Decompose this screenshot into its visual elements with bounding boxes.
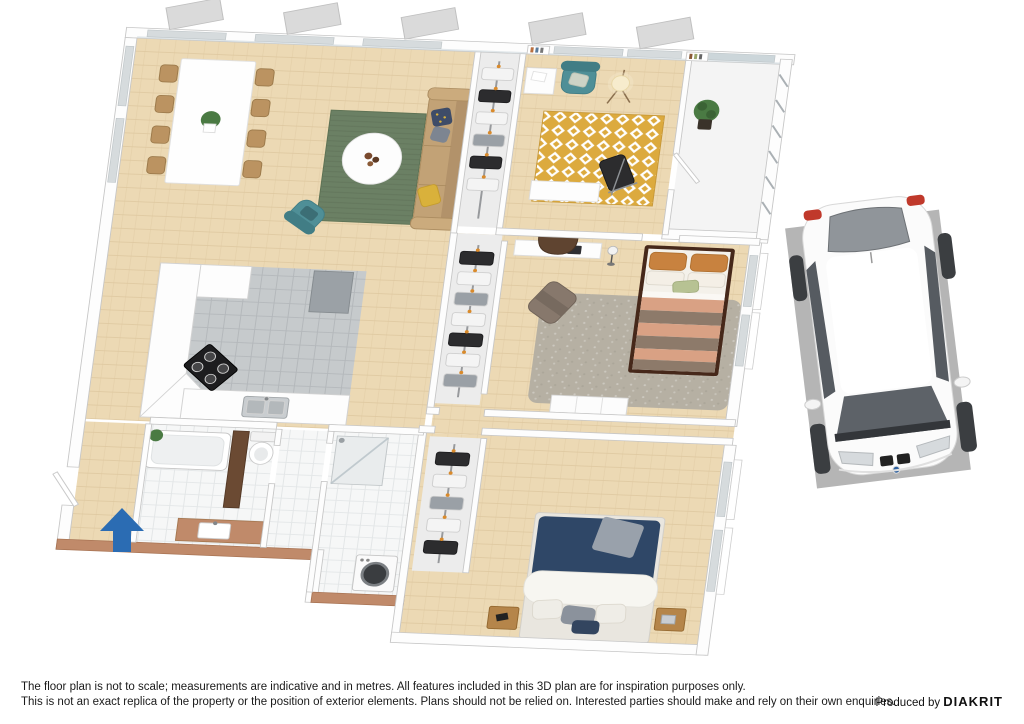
producer-credit: Produced by DIAKRIT	[876, 694, 1003, 709]
wall-master-bottom-a	[426, 407, 440, 414]
credit-prefix: Produced by	[876, 697, 944, 709]
floor-plan-page: The floor plan is not to scale; measurem…	[0, 0, 1024, 724]
apartment-plan	[32, 0, 801, 656]
entrance-door	[53, 472, 78, 507]
fridge	[309, 271, 354, 313]
grille-right	[896, 453, 910, 465]
bed-2	[517, 512, 667, 643]
plant-pot	[203, 124, 216, 133]
toilet	[247, 432, 277, 465]
nightstand-deco	[661, 615, 676, 624]
washing-machine	[352, 555, 398, 592]
striped-duvet	[632, 297, 724, 373]
green-accent-pillow	[673, 280, 699, 294]
navy-pillow	[571, 620, 600, 635]
taillight-right	[906, 194, 925, 206]
floor-plan-canvas	[0, 0, 1024, 724]
wall-corridor-shower-a	[327, 431, 334, 443]
orange-pillow	[649, 252, 688, 270]
bathroom-vanity	[175, 518, 263, 544]
bathtub-inner	[150, 434, 224, 466]
papers	[531, 71, 547, 82]
diakrit-logo: DIAKRIT	[943, 694, 1003, 709]
grille-left	[880, 455, 894, 467]
roof	[825, 247, 933, 395]
disclaimer-line-2: This is not an exact replica of the prop…	[21, 696, 896, 708]
desk	[529, 181, 600, 203]
wall-bedroom2-top-a	[419, 426, 436, 433]
pillow	[532, 599, 562, 619]
orange-pillow	[690, 254, 729, 272]
kitchen-sink	[241, 396, 289, 419]
vanity-sink	[197, 523, 230, 540]
master-bed	[628, 245, 735, 376]
pillow	[596, 604, 627, 623]
parking-space	[781, 190, 981, 488]
plant-pot-dark	[697, 119, 712, 130]
disclaimer-line-1: The floor plan is not to scale; measurem…	[21, 681, 746, 693]
